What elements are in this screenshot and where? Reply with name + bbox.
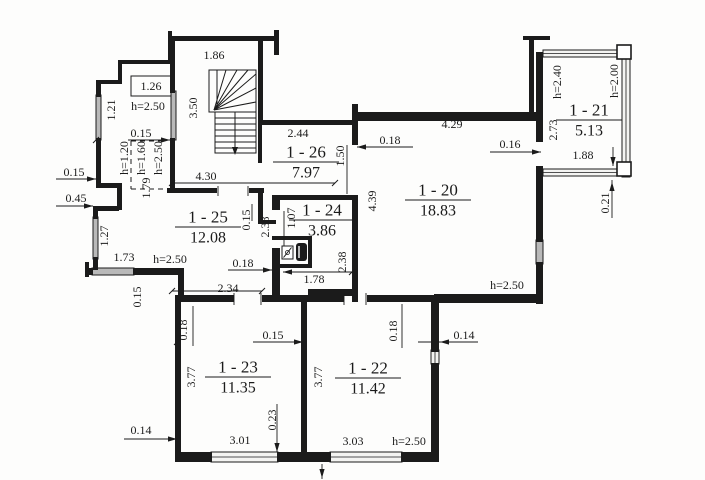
wall-segment xyxy=(133,268,183,275)
wall-segment xyxy=(272,248,280,302)
wall-segment xyxy=(258,39,263,125)
dim-label: h=2.00 xyxy=(607,64,621,98)
wall-segment xyxy=(277,452,331,462)
dim-label: 1.78 xyxy=(304,272,325,286)
wall-segment xyxy=(272,236,312,240)
wall-segment xyxy=(536,52,543,142)
wall-segment xyxy=(93,257,98,270)
room-area: 7.97 xyxy=(292,165,320,182)
dim-label: 3.77 xyxy=(184,367,198,388)
floor-plan-svg: 1.861.26h=2.503.501.210.15h=1.20h=1.60h=… xyxy=(0,0,705,480)
dim-label: 1.27 xyxy=(97,226,111,247)
wall-segment xyxy=(258,120,358,125)
dim-label: 1.73 xyxy=(114,250,135,264)
dim-label: 2.38 xyxy=(258,217,272,238)
wall-segment xyxy=(262,295,344,302)
dim-label: 0.14 xyxy=(131,423,152,437)
floor-plan-canvas: 1.861.26h=2.503.501.210.15h=1.20h=1.60h=… xyxy=(0,0,705,480)
window-icon xyxy=(96,95,101,140)
dim-label: 2.38 xyxy=(335,252,349,273)
dim-label: 1.86 xyxy=(204,48,225,62)
room-area: 5.13 xyxy=(575,123,603,140)
wall-segment xyxy=(274,30,279,55)
dim-label: 0.15 xyxy=(131,126,152,140)
dim-label: 3.77 xyxy=(311,367,325,388)
dim-label: 3.03 xyxy=(343,434,364,448)
room-number: 1 - 23 xyxy=(218,358,258,377)
dim-label: 0.18 xyxy=(233,256,254,270)
room-number: 1 - 20 xyxy=(418,181,458,200)
room-number: 1 - 22 xyxy=(348,359,388,378)
dim-label: 0.15 xyxy=(130,287,144,308)
dim-label: 3.01 xyxy=(230,433,251,447)
wall-segment xyxy=(96,138,101,186)
wall-segment xyxy=(117,183,122,210)
wall-segment xyxy=(175,295,234,302)
room-area: 11.35 xyxy=(220,380,255,397)
window-icon xyxy=(536,240,543,264)
dim-label: 0.23 xyxy=(265,410,279,431)
wall-segment xyxy=(536,166,543,242)
dim-label: 0.45 xyxy=(66,191,87,205)
wall-segment xyxy=(93,209,98,219)
dim-label: 2.44 xyxy=(288,126,309,140)
wall-segment xyxy=(272,264,312,268)
room-area: 11.42 xyxy=(350,381,385,398)
dim-label: 2.34 xyxy=(218,281,239,295)
wall-segment xyxy=(272,195,356,200)
dim-label: 4.39 xyxy=(365,191,379,212)
window-icon xyxy=(171,91,176,140)
wall-segment xyxy=(308,236,312,266)
room-number: 1 - 21 xyxy=(569,101,609,120)
balcony-post xyxy=(617,162,631,176)
wall-segment xyxy=(434,294,540,303)
wall-segment xyxy=(96,82,101,97)
wall-segment xyxy=(167,188,217,193)
dim-label: h=1.20 xyxy=(117,141,131,175)
wall-segment xyxy=(175,452,212,462)
wall-segment xyxy=(431,295,439,352)
wall-segment xyxy=(352,195,358,302)
dim-label: 0.18 xyxy=(380,133,401,147)
dim-label: 3.50 xyxy=(186,98,200,119)
dim-label: 0.14 xyxy=(454,328,475,342)
balcony-post xyxy=(617,45,631,59)
dim-label: 0.15 xyxy=(239,210,253,231)
wall-segment xyxy=(301,302,307,454)
room-area: 18.83 xyxy=(420,203,456,220)
room-number: 1 - 24 xyxy=(302,201,342,220)
wall-segment xyxy=(118,60,172,64)
water-heater-icon xyxy=(296,243,307,261)
wall-segment xyxy=(529,36,534,116)
dim-label: 0.18 xyxy=(386,321,400,342)
dim-label: 1.26 xyxy=(141,79,162,93)
dim-label: 4.30 xyxy=(196,169,217,183)
dim-label: h=2.50 xyxy=(151,141,165,175)
wall-segment xyxy=(401,452,439,462)
wall-segment xyxy=(367,295,435,302)
wall-segment xyxy=(431,363,439,462)
dim-label: h=1.60 xyxy=(134,141,148,175)
wall-segment xyxy=(352,104,358,145)
room-number: 1 - 26 xyxy=(286,143,326,162)
dim-label: 2.73 xyxy=(546,120,560,141)
dim-label: 1.88 xyxy=(573,148,594,162)
window-icon xyxy=(92,268,134,275)
dim-label: h=2.50 xyxy=(131,99,165,113)
dim-label: 1.50 xyxy=(333,146,347,167)
dim-label: 0.15 xyxy=(64,165,85,179)
dim-label: 1.21 xyxy=(104,100,118,121)
dim-label: h=2.50 xyxy=(153,252,187,266)
dim-label: h=2.50 xyxy=(392,434,426,448)
wall-segment xyxy=(85,268,93,275)
room-area: 12.08 xyxy=(190,230,226,247)
room-area: 3.86 xyxy=(308,223,336,240)
dim-label: 4.29 xyxy=(442,117,463,131)
dim-label: 0.18 xyxy=(176,320,190,341)
wall-segment xyxy=(308,289,356,296)
room-number: 1 - 25 xyxy=(188,208,228,227)
dim-label: 1.07 xyxy=(284,208,298,229)
dim-label: h=2.50 xyxy=(490,278,524,292)
dim-label: 0.15 xyxy=(263,328,284,342)
dim-label: 0.21 xyxy=(598,193,612,214)
wall-segment xyxy=(258,125,262,163)
wall-segment xyxy=(523,36,550,40)
dim-label: 1.79 xyxy=(139,178,153,199)
dim-label: 0.16 xyxy=(500,137,521,151)
dim-label: h=2.40 xyxy=(550,65,564,99)
